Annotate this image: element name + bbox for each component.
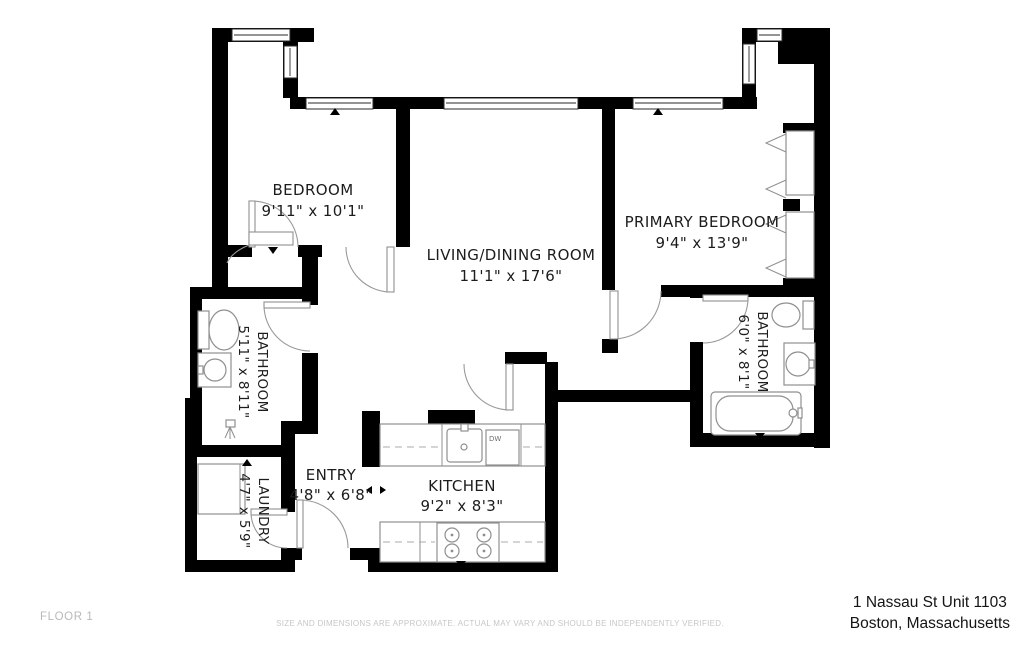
toilet-icon-2 (772, 301, 814, 329)
bathtub-icon (711, 392, 802, 435)
floorplan-drawing: DW BEDROOM 9'11" (0, 0, 1024, 672)
address-line2: Boston, Massachusetts (850, 613, 1010, 634)
dishwasher-label: DW (489, 435, 501, 443)
bathroom2-dims: 6'0" x 8'1" (735, 314, 751, 389)
closet-door (249, 232, 293, 245)
kitchen-dims: 9'2" x 8'3" (420, 497, 503, 515)
bedroom-dims: 9'11" x 10'1" (262, 202, 365, 220)
living-dining-label: LIVING/DINING ROOM (427, 246, 596, 264)
kitchen-sink-icon (447, 424, 482, 462)
primary-bedroom-dims: 9'4" x 13'9" (656, 234, 749, 252)
kitchen-label: KITCHEN (428, 477, 496, 495)
sink-icon-2 (784, 343, 815, 385)
entry-label: ENTRY (306, 466, 357, 484)
toilet-icon (198, 310, 239, 350)
dishwasher-icon: DW (486, 430, 519, 465)
bathroom1-door (264, 302, 310, 308)
entry-dims: 4'8" x 6'8" (289, 486, 372, 504)
property-address: 1 Nassau St Unit 1103 Boston, Massachuse… (850, 592, 1010, 634)
sink-icon (198, 353, 231, 387)
hall-closet-door (506, 364, 513, 410)
hall-door (387, 247, 394, 292)
stove-icon (437, 523, 499, 562)
bathroom2-label: BATHROOM (754, 311, 770, 392)
entry-door (297, 500, 303, 548)
bathroom1-label: BATHROOM (254, 331, 270, 412)
shower-icon (225, 420, 235, 439)
bedroom-label: BEDROOM (272, 181, 353, 199)
bathroom2-door (703, 295, 748, 301)
laundry-label: LAUNDRY (255, 477, 271, 544)
bathroom1-dims: 5'11" x 8'11" (235, 325, 251, 418)
primary-bedroom-door (610, 291, 618, 339)
laundry-dims: 4'7" x 5'9" (236, 473, 252, 548)
address-line1: 1 Nassau St Unit 1103 (850, 592, 1010, 613)
living-dining-dims: 11'1" x 17'6" (460, 267, 563, 285)
floorplan-page: DW BEDROOM 9'11" (0, 0, 1024, 672)
primary-bedroom-label: PRIMARY BEDROOM (625, 213, 780, 231)
